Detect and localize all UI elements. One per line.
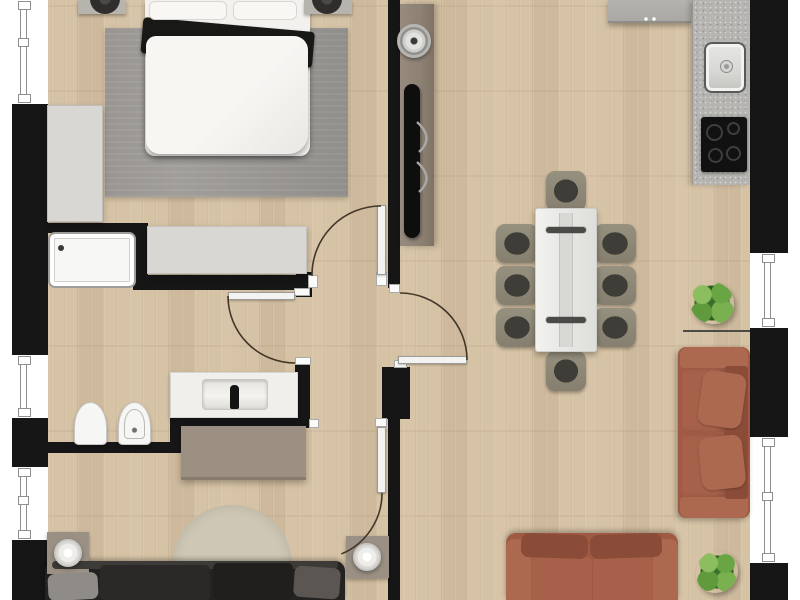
wall-right-lower xyxy=(750,563,788,600)
window-handle xyxy=(18,38,29,47)
sofa-seat-mid1 xyxy=(100,565,210,600)
sofa-pillow-right xyxy=(293,565,341,599)
dining-chair-left-3 xyxy=(496,308,538,347)
door-jamb xyxy=(295,357,311,365)
table-lamp-left xyxy=(54,539,82,567)
dining-chair-right-3 xyxy=(594,308,636,347)
sofa-right-back-pillow-2 xyxy=(697,434,746,491)
candle-holder-top xyxy=(546,227,586,233)
tv xyxy=(404,84,420,238)
window-pane xyxy=(20,3,27,101)
shower-drain xyxy=(58,245,64,251)
pillow-right xyxy=(233,1,297,20)
pillow-left xyxy=(149,1,227,20)
cooktop xyxy=(701,117,747,172)
dining-chair-left-2 xyxy=(496,266,538,305)
door-jamb xyxy=(375,418,387,427)
table-runner xyxy=(559,213,573,347)
wall-bedroom-south xyxy=(133,275,312,290)
kitchen-cabinet-handles xyxy=(643,17,657,21)
door-jamb xyxy=(294,288,310,296)
wall-hall-block xyxy=(382,367,410,419)
plant-upper xyxy=(690,282,734,324)
window-handle xyxy=(762,492,773,501)
door-jamb xyxy=(309,419,319,428)
window-handle xyxy=(18,496,29,505)
shower-tray xyxy=(48,232,136,288)
dresser xyxy=(147,226,307,274)
lounge-door-leaf xyxy=(377,427,386,493)
window-right-upper xyxy=(750,253,788,328)
bidet-bowl xyxy=(124,409,145,439)
wardrobe xyxy=(47,105,103,222)
sofa-bottom-seat-2 xyxy=(593,557,653,600)
sink-drain xyxy=(720,60,733,73)
door-jamb xyxy=(389,284,400,293)
burner xyxy=(706,124,723,141)
burner xyxy=(727,122,740,135)
window-right-lower xyxy=(750,437,788,563)
window-left-lower xyxy=(12,467,48,540)
hall-sideboard xyxy=(181,426,306,480)
sofa-pillow-left xyxy=(47,572,98,600)
sofa-bottom-seat-1 xyxy=(531,557,592,600)
floor-plan-canvas xyxy=(0,0,800,600)
window-left-top xyxy=(12,0,48,104)
radiator-line xyxy=(683,330,750,332)
wall-right-upper xyxy=(750,0,788,253)
sofa-right-armrest-bottom xyxy=(680,497,748,518)
table-lamp-right xyxy=(353,543,381,571)
wall-bathroom-south xyxy=(40,442,183,453)
dining-chair-right-1 xyxy=(594,224,636,263)
door-jamb xyxy=(308,275,318,288)
bed-duvet xyxy=(146,36,308,154)
candle-holder-bottom xyxy=(546,317,586,323)
bedroom-door-leaf xyxy=(377,205,386,275)
window-pane xyxy=(764,256,771,325)
sofa-seat-mid2 xyxy=(213,563,293,600)
toilet xyxy=(74,402,107,445)
wall-clock xyxy=(397,24,431,58)
wall-divider-lower xyxy=(388,413,400,600)
sofa-right-back-pillow-1 xyxy=(696,369,747,430)
window-left-middle xyxy=(12,355,48,418)
sofa-bottom-back-cushion-1 xyxy=(521,533,589,559)
sofa-right-armrest-top xyxy=(680,347,748,368)
dining-chair-right-2 xyxy=(594,266,636,305)
dining-chair-top xyxy=(546,171,586,211)
wall-right-mid xyxy=(750,328,788,437)
wall-left-lower xyxy=(12,540,48,600)
vanity-faucet xyxy=(230,385,239,409)
burner xyxy=(726,146,741,161)
living-room-door-leaf xyxy=(398,356,467,364)
sofa-bottom-back-cushion-2 xyxy=(590,533,663,559)
burner xyxy=(708,148,723,163)
dining-chair-left-1 xyxy=(496,224,538,263)
bathroom-door-leaf xyxy=(228,292,295,300)
window-pane xyxy=(20,358,27,415)
dining-chair-bottom xyxy=(546,351,586,391)
